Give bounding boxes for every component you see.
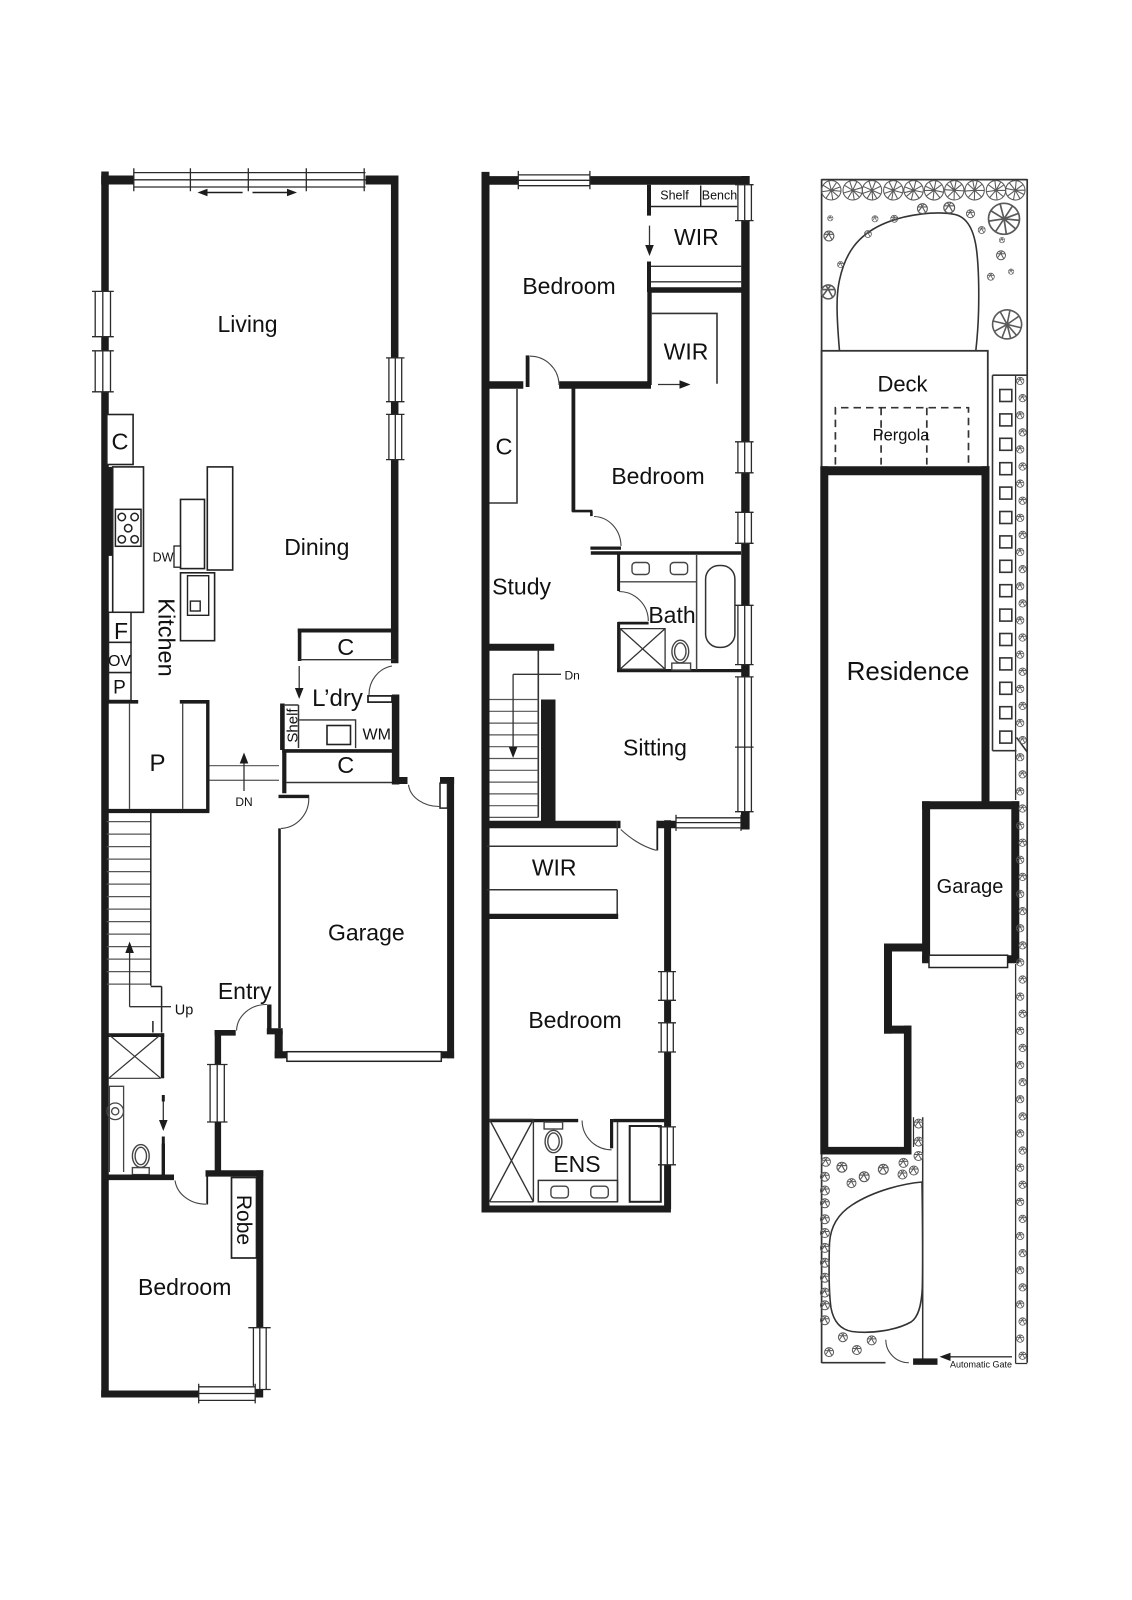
svg-text:DN: DN (235, 795, 252, 809)
svg-text:P: P (149, 750, 165, 777)
svg-text:Living: Living (217, 311, 277, 337)
svg-text:WIR: WIR (532, 855, 577, 881)
svg-text:Up: Up (175, 1003, 194, 1019)
svg-text:WIR: WIR (674, 224, 719, 250)
svg-text:Study: Study (492, 574, 551, 600)
svg-text:C: C (337, 634, 354, 660)
svg-text:Robe: Robe (232, 1195, 255, 1245)
svg-text:C: C (496, 434, 513, 460)
svg-text:Entry: Entry (218, 978, 272, 1004)
svg-text:ENS: ENS (553, 1151, 600, 1177)
svg-text:Shelf: Shelf (285, 708, 302, 743)
svg-text:WM: WM (363, 727, 391, 744)
svg-text:Pergola: Pergola (873, 427, 931, 445)
svg-text:DW: DW (153, 551, 174, 565)
svg-text:Dn: Dn (565, 669, 580, 683)
svg-text:Deck: Deck (877, 372, 928, 397)
svg-text:Shelf: Shelf (660, 189, 689, 203)
svg-text:Bedroom: Bedroom (528, 1007, 621, 1033)
svg-text:Bedroom: Bedroom (611, 463, 704, 489)
svg-text:C: C (337, 752, 354, 778)
svg-text:Sitting: Sitting (623, 735, 687, 761)
svg-text:Bath: Bath (648, 602, 695, 628)
svg-text:WIR: WIR (664, 339, 709, 365)
svg-text:Dining: Dining (284, 534, 349, 560)
svg-text:Bench: Bench (702, 189, 737, 203)
svg-text:Kitchen: Kitchen (154, 598, 180, 676)
svg-text:F: F (114, 618, 128, 644)
svg-text:OV: OV (108, 653, 131, 670)
svg-text:Residence: Residence (847, 656, 970, 686)
svg-text:Bedroom: Bedroom (522, 273, 615, 299)
svg-text:Garage: Garage (937, 876, 1004, 898)
svg-text:L’dry: L’dry (312, 685, 363, 712)
svg-text:Automatic Gate: Automatic Gate (950, 1360, 1012, 1370)
svg-text:Bedroom: Bedroom (138, 1274, 231, 1300)
svg-text:C: C (112, 429, 129, 455)
svg-text:P: P (113, 678, 126, 699)
svg-text:Garage: Garage (328, 920, 405, 946)
